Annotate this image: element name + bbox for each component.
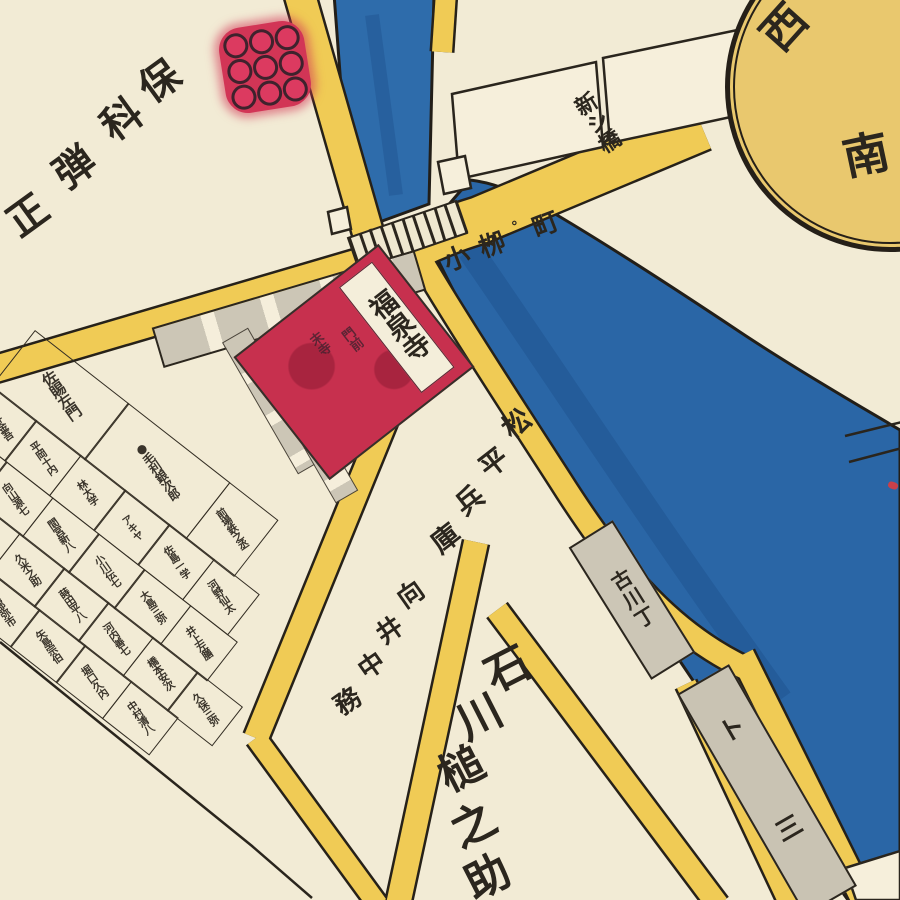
corner-strip-char-1: ト (711, 706, 752, 751)
crest-dot (272, 23, 301, 52)
corner-strip-char-2: 三 (768, 804, 809, 849)
plot-name: 大島三弥 (138, 588, 168, 625)
temple-sub-right: 門前 (337, 326, 364, 355)
plot-name: 井上左膳 (184, 624, 214, 661)
crest-dot (251, 53, 280, 82)
plot-name: 河野仙太 (205, 579, 235, 616)
plot-name: 河内善七 (101, 621, 131, 658)
koyanagi-ward-circle: ° (510, 218, 522, 235)
plot-name: 平岡十内 (28, 440, 58, 477)
plot-name: 久保三弥 (190, 690, 220, 727)
plot-name: アキヤ (119, 513, 144, 542)
plot-name: ●毛利銀次郎 (133, 440, 182, 503)
plot-name: 向山源七 (0, 481, 30, 518)
edo-kiriezu-map: 福泉寺 末寺 門前 古川丁 ト 三 西 南 保 科 弾 正 小 栁 ° 町 新シ… (0, 0, 900, 900)
plot-name: 久米之助 (12, 551, 42, 588)
crest-dot (276, 49, 305, 78)
crest-dot (247, 27, 276, 56)
plot-name: 矢島宗伯 (33, 628, 63, 665)
crest-dot (255, 78, 284, 107)
crest-dot (229, 82, 258, 111)
plot-name: 小川伝七 (92, 552, 122, 589)
crest-dot (225, 57, 254, 86)
plot-name: 前場鉄之丞 (214, 507, 250, 552)
plot-name: 岡部弥市 (0, 592, 17, 629)
parcel-small-box (328, 207, 351, 234)
parcel-notch (438, 156, 471, 194)
compass-south-label: 南 (839, 128, 894, 183)
plot-name: 堀口久内 (79, 664, 109, 701)
mori-name: 毛利銀次郎 (140, 450, 183, 503)
plot-name: 林大学 (75, 478, 100, 507)
temple-sub-left: 末寺 (306, 331, 333, 360)
road-canal-right (442, 0, 446, 52)
temple-name: 福泉寺 (361, 287, 433, 368)
plot-name: 佐島一学 (161, 544, 191, 581)
plot-name: 蒔田平八 (56, 586, 86, 623)
plot-name: 中村清八 (125, 700, 155, 737)
crest-dot (280, 74, 309, 103)
plot-name: 沢井金吾 (0, 405, 14, 442)
plot-name: 間宮新八 (46, 516, 76, 553)
plot-name: 佐賜左門 (38, 368, 82, 422)
plot-name: 橋本安次 (145, 655, 175, 692)
kuyo-crest-icon (216, 18, 314, 116)
crest-dot (221, 31, 250, 60)
